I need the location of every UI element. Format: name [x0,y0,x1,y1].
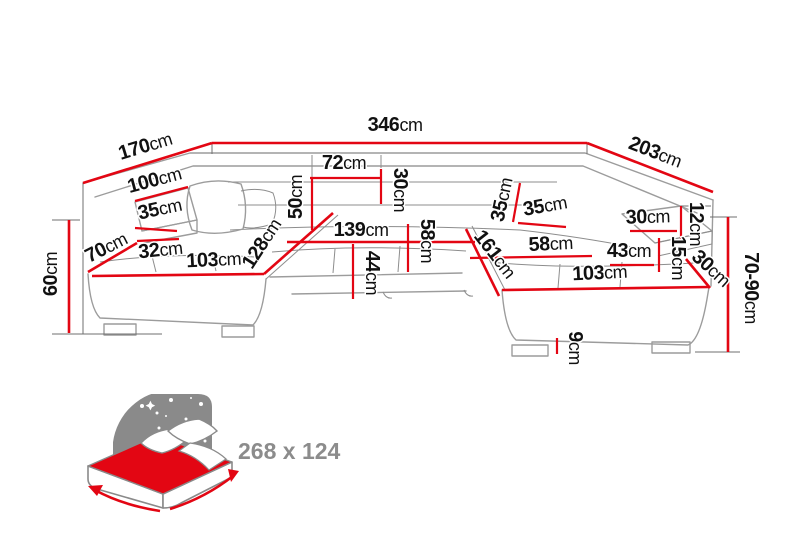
left-chaise-leg-1 [104,324,136,335]
dim-label-seat-depth-middle: 58cm [416,219,438,263]
dim-label-left-chaise-diagonal: 128cm [238,215,286,273]
dim-line-right-armrest-top [518,223,566,227]
dim-label-leg-height: 9cm [564,331,586,365]
dim-label-left-armrest-front: 32cm [137,237,183,264]
dim-label-right-seat-depth: 58cm [528,232,573,256]
dim-label-middle-seat-width: 139cm [334,219,389,241]
dim-label-seat-height: 44cm [361,251,383,295]
furniture-dimension-diagram: 346cm 170cm 203cm 100cm 35cm 70cm 32cm 1… [0,0,800,533]
right-chaise-leg-1 [512,345,548,356]
left-chaise-leg-2 [222,326,254,337]
right-chaise-body [502,287,709,345]
dim-label-right-armrest-height: 15cm [667,236,689,280]
pillow-front [187,181,246,233]
dim-label-right-side-height: 70-90cm [740,252,762,324]
dim-label-right-back-depth: 203cm [626,132,685,172]
dim-line-right-seat-length [502,287,709,290]
sleeping-area-size: 268 x 124 [238,438,341,464]
dim-line-left-seat-length [92,274,264,276]
dim-label-right-armrest-top: 35cm [521,191,568,220]
sofa-dimension-drawing: 346cm 170cm 203cm 100cm 35cm 70cm 32cm 1… [0,0,800,533]
dim-label-headrest-height: 30cm [389,168,411,212]
left-chaise-body [88,274,266,325]
dim-label-right-armrest-top-len: 30cm [625,205,670,229]
sleeping-function-icon: 268 x 124 [88,393,341,511]
dim-label-left-side-height: 60cm [40,252,62,296]
dim-label-left-seat-length: 103cm [186,248,242,273]
dim-label-headrest-width: 72cm [322,152,366,174]
dim-label-backrest-height: 50cm [285,175,307,219]
dimension-labels: 346cm 170cm 203cm 100cm 35cm 70cm 32cm 1… [40,114,762,365]
dim-label-right-chaise-diagonal: 161cm [469,226,520,283]
dim-label-right-seat-length: 103cm [572,261,628,286]
dim-label-back-width: 346cm [368,114,423,136]
dim-label-right-armrest-depth: 43cm [607,240,651,262]
